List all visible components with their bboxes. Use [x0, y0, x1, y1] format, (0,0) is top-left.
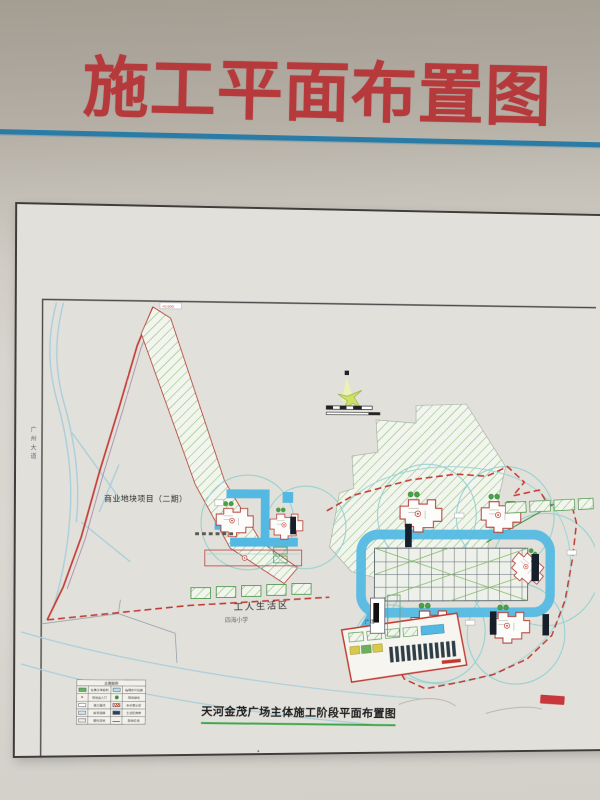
pencil-mark	[399, 698, 543, 715]
scale-bar	[326, 406, 380, 415]
legend-table: 主要图例 在建主体结构 临建办公设施 ➤ 场地出入口 现场绿化 施工围挡 安全警…	[76, 680, 146, 725]
plaza-label: 广场	[365, 618, 375, 626]
facility-strip-north	[505, 498, 593, 513]
page-title: 施工平面布置图	[82, 34, 600, 141]
legend-label: 硬化场地	[88, 717, 111, 725]
entrance-arrow-icon: ➤	[77, 694, 88, 702]
site-plan-poster: +0.000	[13, 202, 600, 758]
drawing-caption: 天河金茂广场主体施工阶段平面布置图	[201, 703, 396, 726]
legend-label: 既有道路	[88, 709, 111, 717]
apex-elevation-label: +0.000	[160, 303, 182, 309]
legend-swatch	[111, 717, 122, 725]
legend-label: 临建办公设施	[122, 686, 145, 694]
legend-label: 在建主体结构	[88, 686, 111, 694]
legend-label: 生活区用房	[122, 709, 145, 717]
legend-swatch	[111, 686, 122, 694]
svg-text:+0.000: +0.000	[162, 304, 175, 309]
legend-label: 用地红线	[122, 717, 145, 725]
legend-swatch	[77, 686, 88, 694]
legend-label: 现场绿化	[122, 694, 145, 702]
office-compound	[341, 613, 467, 683]
legend-swatch	[76, 717, 87, 725]
workers-strip	[191, 584, 311, 599]
legend-label: 场地出入口	[88, 694, 111, 702]
north-arrow-icon	[338, 371, 362, 410]
legend-swatch	[76, 701, 87, 709]
legend-swatch	[111, 701, 122, 709]
workers-area-label: 工人生活区	[233, 599, 289, 613]
red-sticker	[540, 695, 565, 705]
legend-label: 安全警示区	[122, 701, 145, 709]
legend-swatch	[76, 709, 87, 717]
basement-grid	[374, 548, 527, 601]
school-label: 四海小学	[225, 616, 248, 624]
legend-swatch	[111, 709, 122, 717]
speck	[257, 750, 259, 752]
site-boundary-west	[47, 306, 157, 620]
phase2-label: 商业地块项目（二期）	[104, 493, 187, 503]
tree-icon	[111, 694, 122, 702]
road-label: 广州大道	[29, 425, 36, 462]
legend-label: 施工围挡	[88, 701, 111, 709]
drawing-caption-text: 天河金茂广场主体施工阶段平面布置图	[201, 706, 396, 720]
